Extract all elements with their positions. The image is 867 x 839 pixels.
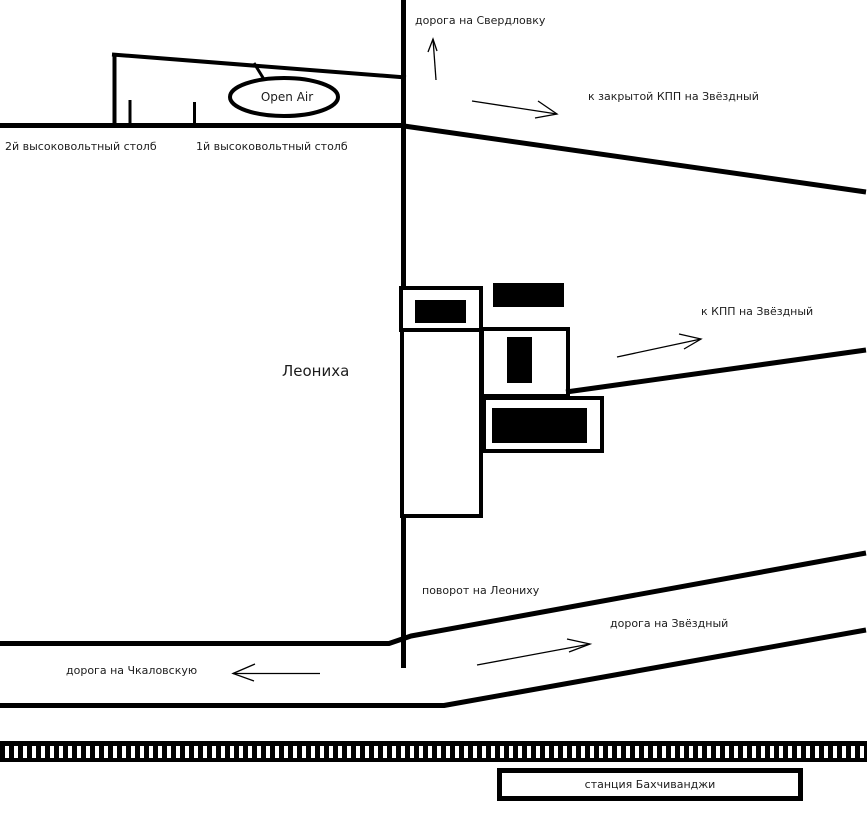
arrow-up-right-kpp-icon [617, 334, 701, 357]
building-top-inner-block [415, 300, 466, 323]
railway-track [0, 741, 867, 762]
road-top-diagonal [404, 126, 866, 192]
arrow-left-icon [233, 664, 320, 681]
label-power-pole-1: 1й высоковольтный столб [196, 140, 348, 153]
map-drawing [0, 0, 867, 839]
label-road-zvyozdny: дорога на Звёздный [610, 617, 728, 630]
arrow-down-right-icon [472, 101, 557, 118]
road-to-kpp [566, 350, 866, 392]
label-road-sverdlovka: дорога на Свердловку [415, 14, 545, 27]
sketch-map: дорога на Свердловку к закрытой КПП на З… [0, 0, 867, 839]
label-village-leonikha: Леониха [282, 362, 349, 380]
label-turn-leonikha: поворот на Леониху [422, 584, 539, 597]
building-middle-inner-block [507, 337, 532, 383]
label-road-chkalovskaya: дорога на Чкаловскую [66, 664, 197, 677]
road-chkalovskaya-to-zvyozdny-upper [0, 553, 866, 644]
building-black-upper [493, 283, 564, 307]
building-outline-tall [402, 330, 481, 516]
label-station: станция Бахчиванджи [585, 778, 716, 791]
label-open-air: Open Air [261, 90, 313, 104]
arrow-up-right-zvyozdny-icon [477, 639, 590, 665]
label-closed-kpp: к закрытой КПП на Звёздный [588, 90, 759, 103]
label-kpp: к КПП на Звёздный [701, 305, 813, 318]
arrow-up-icon [428, 39, 437, 80]
station-box: станция Бахчиванджи [497, 768, 803, 801]
label-power-pole-2: 2й высоковольтный столб [5, 140, 157, 153]
building-bottom-inner-block [492, 408, 587, 443]
